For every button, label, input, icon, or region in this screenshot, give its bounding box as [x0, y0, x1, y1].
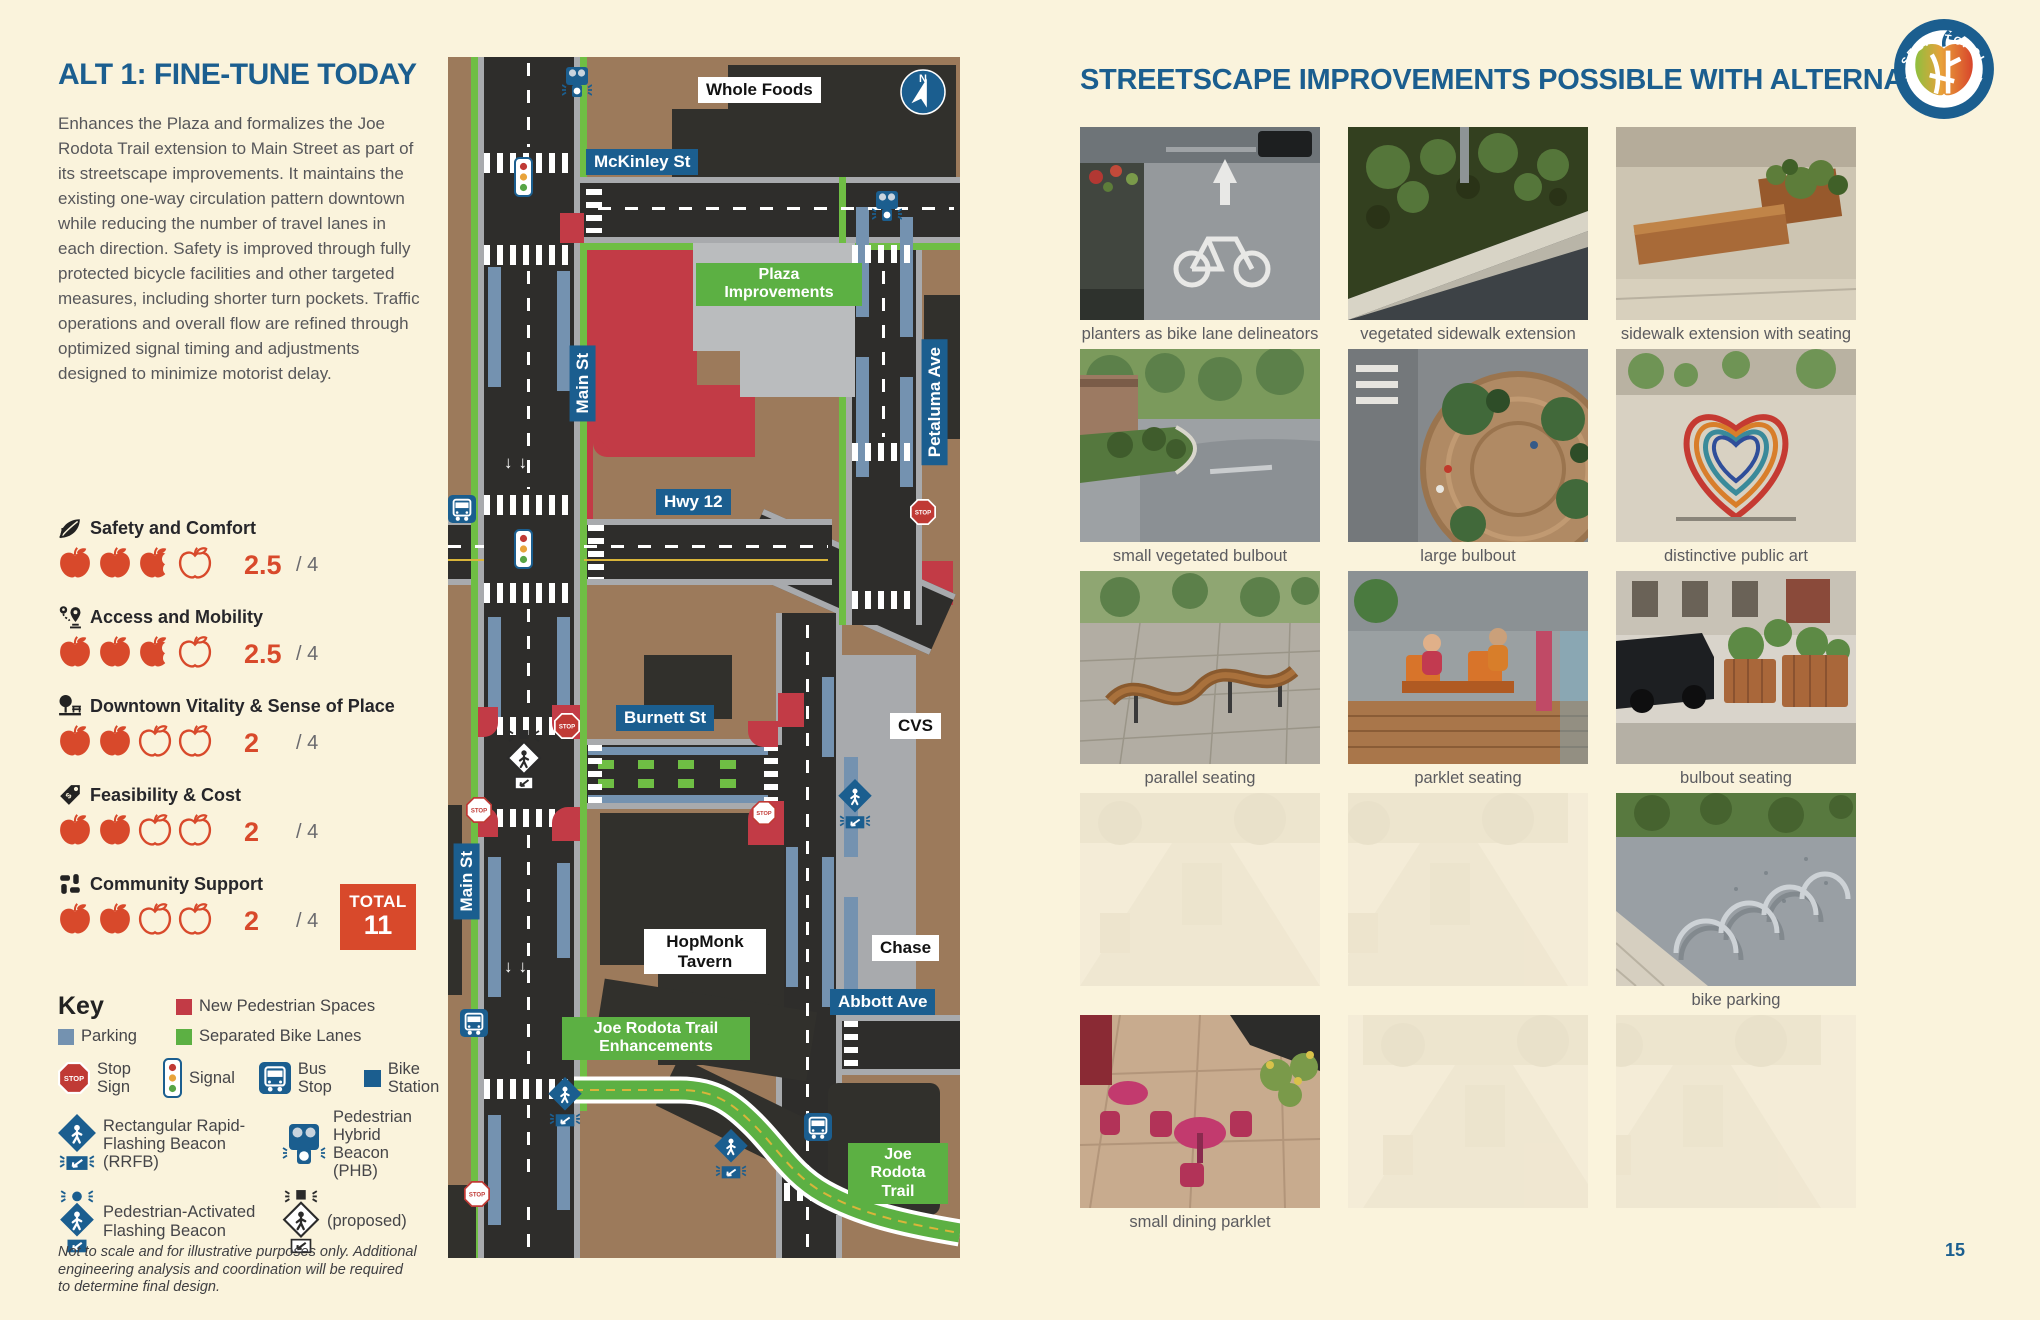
map-label-joe-rodota-trail: Joe Rodota Trail [848, 1143, 948, 1204]
price-tag-icon: $ [58, 783, 82, 807]
photo-caption: vegetated sidewalk extension [1348, 325, 1588, 344]
map-label-abbott-ave: Abbott Ave [830, 989, 935, 1015]
north-compass-icon: N [900, 69, 946, 115]
photo-sidewalk-seating: sidewalk extension with seating [1616, 127, 1856, 349]
phb-icon [282, 1118, 326, 1170]
photo-caption: small dining parklet [1080, 1213, 1320, 1232]
photo-dining-parklet: small dining parklet [1080, 1015, 1320, 1237]
rating-label: Safety and Comfort [90, 518, 256, 539]
photo-public-art: distinctive public art [1616, 349, 1856, 571]
svg-text:STOP: STOP [64, 1074, 84, 1083]
key-rrfb: Rectangular Rapid-Flashing Beacon (RRFB) [58, 1114, 258, 1174]
bike-station-icon [364, 1070, 381, 1087]
key-parking: Parking [58, 1027, 176, 1046]
map-label-main-st-north: Main St [570, 345, 596, 421]
traffic-signal-icon [514, 529, 533, 569]
key-signal: Signal [163, 1058, 235, 1098]
phb-icon [872, 189, 902, 225]
rating-label: Downtown Vitality & Sense of Place [90, 696, 395, 717]
bus-icon [448, 495, 476, 523]
apple-score [58, 546, 218, 584]
alternative-description: Enhances the Plaza and formalizes the Jo… [58, 112, 420, 387]
rating-access-mobility: Access and Mobility 2.5/ 4 [58, 605, 438, 694]
photo-large-bulbout: large bulbout [1348, 349, 1588, 571]
photo-faded [1616, 1015, 1856, 1237]
map-label-mckinley-st: McKinley St [586, 149, 698, 175]
photo-caption: bulbout seating [1616, 769, 1856, 788]
route-pins-icon [58, 605, 82, 629]
map-key: Key New Pedestrian Spaces Parking Separa… [58, 992, 430, 1255]
svg-text:STOP: STOP [915, 510, 931, 516]
rating-downtown-vitality: Downtown Vitality & Sense of Place 2/ 4 [58, 694, 438, 783]
right-panel-title: STREETSCAPE IMPROVEMENTS POSSIBLE WITH A… [1080, 64, 1989, 97]
red-swatch [176, 999, 192, 1015]
apple-score [58, 635, 218, 673]
map-label-hwy-12: Hwy 12 [656, 489, 731, 515]
stop-sign-icon: STOP [58, 1062, 90, 1094]
photo-bike-parking: bike parking [1616, 793, 1856, 1015]
document-page: ALT 1: FINE-TUNE TODAY Enhances the Plaz… [0, 0, 2040, 1320]
key-stop-sign: STOPStop Sign [58, 1060, 139, 1096]
rating-safety-comfort: Safety and Comfort 2.5/ 4 [58, 516, 438, 605]
green-swatch [176, 1029, 192, 1045]
leaf-icon [58, 516, 82, 540]
total-score-badge: TOTAL 11 [340, 884, 416, 950]
rating-label: Community Support [90, 874, 263, 895]
rrfb-icon [838, 779, 872, 833]
map-label-whole-foods: Whole Foods [698, 77, 821, 103]
photo-small-bulbout: small vegetated bulbout [1080, 349, 1320, 571]
key-separated-bike-lanes: Separated Bike Lanes [176, 1027, 361, 1046]
photo-caption: distinctive public art [1616, 547, 1856, 566]
apple-score [58, 813, 218, 851]
key-new-pedestrian-spaces: New Pedestrian Spaces [176, 997, 375, 1016]
svg-text:STOP: STOP [471, 808, 487, 814]
map-label-cvs: CVS [890, 713, 941, 739]
map-label-jrt-enhancements: Joe Rodota Trail Enhancements [562, 1017, 750, 1060]
joe-rodota-trail-path [448, 57, 960, 1258]
key-title: Key [58, 992, 176, 1021]
sebastopol-logo: SEBASTOPOL REIMAGINING THE CORE [1891, 16, 1997, 122]
rating-score: 2 [244, 728, 296, 759]
proposed-stop-sign-icon: STOP [466, 797, 492, 823]
rrfb-icon [714, 1129, 748, 1183]
bus-icon [804, 1113, 832, 1141]
apple-score [58, 902, 218, 940]
photo-caption: parklet seating [1348, 769, 1588, 788]
map-label-hopmonk-tavern: HopMonk Tavern [644, 929, 766, 974]
photo-faded [1348, 793, 1588, 1015]
stop-sign-icon: STOP [910, 499, 936, 525]
map-label-burnett-st: Burnett St [616, 705, 714, 731]
page-title: ALT 1: FINE-TUNE TODAY [58, 58, 416, 92]
disclaimer-text: Not to scale and for illustrative purpos… [58, 1244, 418, 1297]
street-map: ↓↓ ↓↓ Whole Foods McKinley St Main St Pl… [448, 57, 960, 1258]
map-label-petaluma-ave: Petaluma Ave [922, 339, 948, 465]
rating-label: Access and Mobility [90, 607, 263, 628]
svg-text:STOP: STOP [469, 1192, 485, 1198]
key-phb: Pedestrian Hybrid Beacon (PHB) [282, 1108, 429, 1181]
bus-icon [259, 1062, 291, 1094]
rating-score: 2.5 [244, 550, 296, 581]
apple-score [58, 724, 218, 762]
stop-sign-icon: STOP [554, 713, 580, 739]
proposed-stop-sign-icon: STOP [752, 801, 776, 825]
photo-caption: large bulbout [1348, 547, 1588, 566]
bus-icon [460, 1009, 488, 1037]
rating-score: 2.5 [244, 639, 296, 670]
proposed-stop-sign-icon: STOP [464, 1181, 490, 1207]
photo-caption: small vegetated bulbout [1080, 547, 1320, 566]
photo-vegetated-sidewalk: vegetated sidewalk extension [1348, 127, 1588, 349]
key-bike-station: Bike Station [364, 1060, 444, 1096]
park-icon [58, 694, 82, 718]
photo-faded [1080, 793, 1320, 1015]
svg-text:STOP: STOP [756, 811, 771, 817]
page-number: 15 [1905, 1240, 1965, 1261]
photo-parallel-seating: parallel seating [1080, 571, 1320, 793]
svg-text:STOP: STOP [559, 724, 575, 730]
photo-faded [1348, 1015, 1588, 1237]
rrfb-icon [58, 1114, 96, 1174]
rrfb-icon [548, 1077, 582, 1131]
photo-caption: parallel seating [1080, 769, 1320, 788]
photo-parklet-seating: parklet seating [1348, 571, 1588, 793]
photo-caption: bike parking [1616, 991, 1856, 1010]
photo-grid: planters as bike lane delineators vegeta… [1080, 127, 1856, 1237]
rating-score: 2 [244, 817, 296, 848]
traffic-signal-icon [514, 157, 533, 197]
photo-caption: sidewalk extension with seating [1616, 325, 1856, 344]
photo-planters-bike-lane: planters as bike lane delineators [1080, 127, 1320, 349]
blue-swatch [58, 1029, 74, 1045]
phb-icon [562, 65, 592, 101]
map-label-plaza-improvements: Plaza Improvements [696, 263, 862, 306]
photo-bulbout-seating: bulbout seating [1616, 571, 1856, 793]
traffic-signal-icon [163, 1058, 182, 1098]
rating-feasibility-cost: $Feasibility & Cost 2/ 4 [58, 783, 438, 872]
map-label-chase: Chase [872, 935, 939, 961]
key-bus-stop: Bus Stop [259, 1060, 340, 1096]
map-label-main-st-south: Main St [454, 843, 480, 919]
rating-score: 2 [244, 906, 296, 937]
hands-icon [58, 872, 82, 896]
photo-caption: planters as bike lane delineators [1080, 325, 1320, 344]
rating-label: Feasibility & Cost [90, 785, 241, 806]
proposed-beacon-icon [506, 729, 542, 793]
